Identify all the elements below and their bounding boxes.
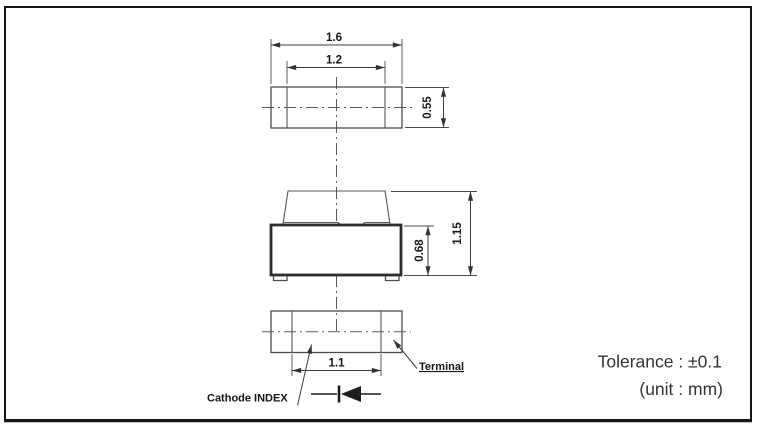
dimension-total-height: 1.15 (391, 192, 477, 276)
terminal-callout: Terminal (394, 340, 465, 373)
cathode-index-callout: Cathode INDEX (207, 345, 381, 406)
cathode-leader-arrow (298, 345, 312, 406)
package-outline-drawing: 1.6 1.2 0.55 (0, 0, 762, 433)
bottom-view: 1.1 Cathode INDEX Terminal (207, 311, 464, 406)
terminal-leader-arrow (394, 340, 418, 369)
tolerance-note: Tolerance : ±0.1 (598, 352, 722, 372)
diode-cathode-index-icon (311, 386, 381, 403)
drawing-canvas: 1.6 1.2 0.55 (0, 0, 762, 433)
dimension-body-height: 0.68 (404, 226, 434, 276)
body-outline (271, 225, 401, 275)
dim-label-terminal-span: 1.1 (329, 358, 346, 370)
diode-triangle (341, 386, 361, 402)
dim-label-depth: 0.55 (422, 96, 434, 119)
notes: Tolerance : ±0.1 (unit : mm) (598, 352, 723, 400)
top-view: 1.6 1.2 0.55 (262, 32, 449, 128)
side-view: 0.68 1.15 (271, 191, 477, 281)
dim-label-outer-width: 1.6 (326, 32, 342, 44)
dim-label-body-height: 0.68 (414, 239, 426, 262)
dim-label-total-height: 1.15 (452, 222, 464, 245)
terminal-label: Terminal (419, 361, 464, 373)
dim-label-inner-width: 1.2 (326, 55, 342, 67)
cathode-index-label: Cathode INDEX (207, 393, 288, 405)
unit-note: (unit : mm) (639, 379, 723, 399)
extension-lines (391, 192, 477, 276)
